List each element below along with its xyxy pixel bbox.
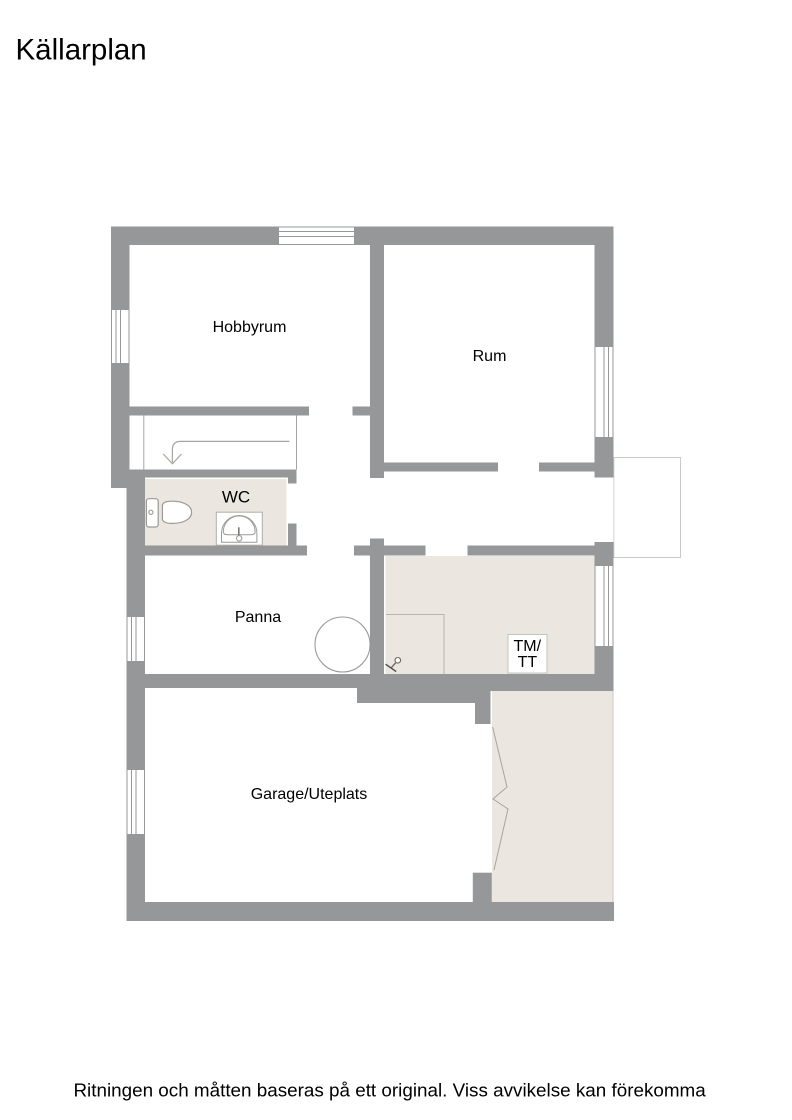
svg-text:TM/: TM/ (514, 638, 542, 655)
svg-text:TT: TT (518, 654, 538, 671)
svg-text:Panna: Panna (235, 609, 281, 626)
svg-text:Hobbyrum: Hobbyrum (213, 319, 287, 336)
svg-text:Rum: Rum (473, 348, 507, 365)
svg-text:WC: WC (222, 488, 250, 507)
svg-text:Ritningen och måtten baseras p: Ritningen och måtten baseras på ett orig… (73, 1079, 706, 1100)
svg-text:Källarplan: Källarplan (16, 34, 147, 67)
svg-text:Garage/Uteplats: Garage/Uteplats (251, 786, 368, 803)
